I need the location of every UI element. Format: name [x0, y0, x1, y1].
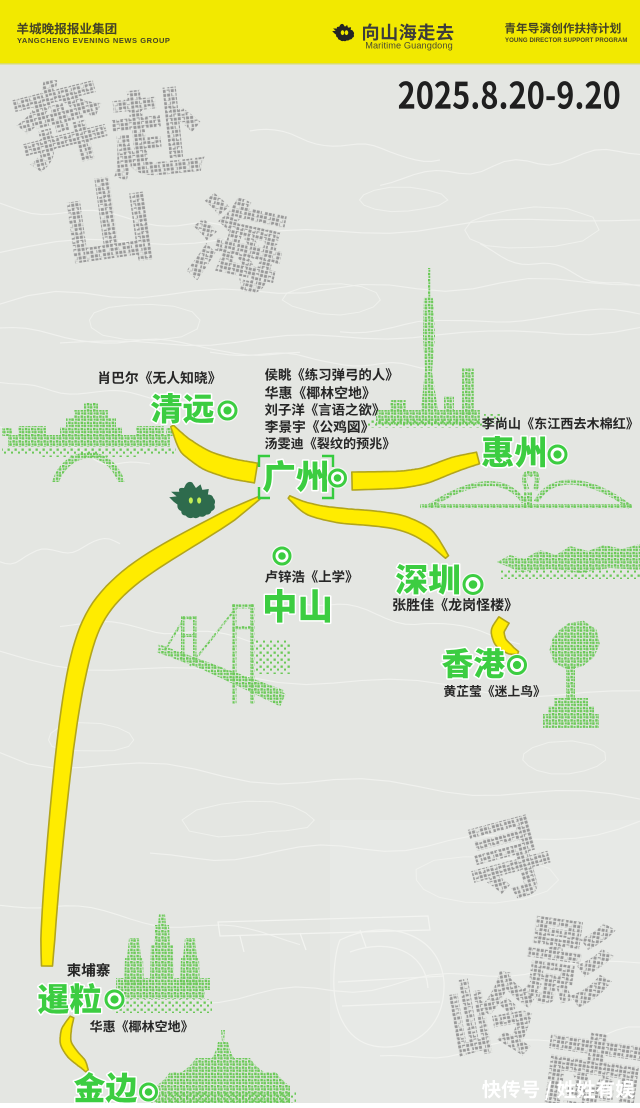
svg-text:YANGCHENG EVENING NEWS GROUP: YANGCHENG EVENING NEWS GROUP [17, 36, 170, 45]
svg-text:YOUNG DIRECTOR SUPPORT PROGRAM: YOUNG DIRECTOR SUPPORT PROGRAM [505, 38, 628, 44]
svg-text:Maritime Guangdong: Maritime Guangdong [365, 41, 453, 51]
